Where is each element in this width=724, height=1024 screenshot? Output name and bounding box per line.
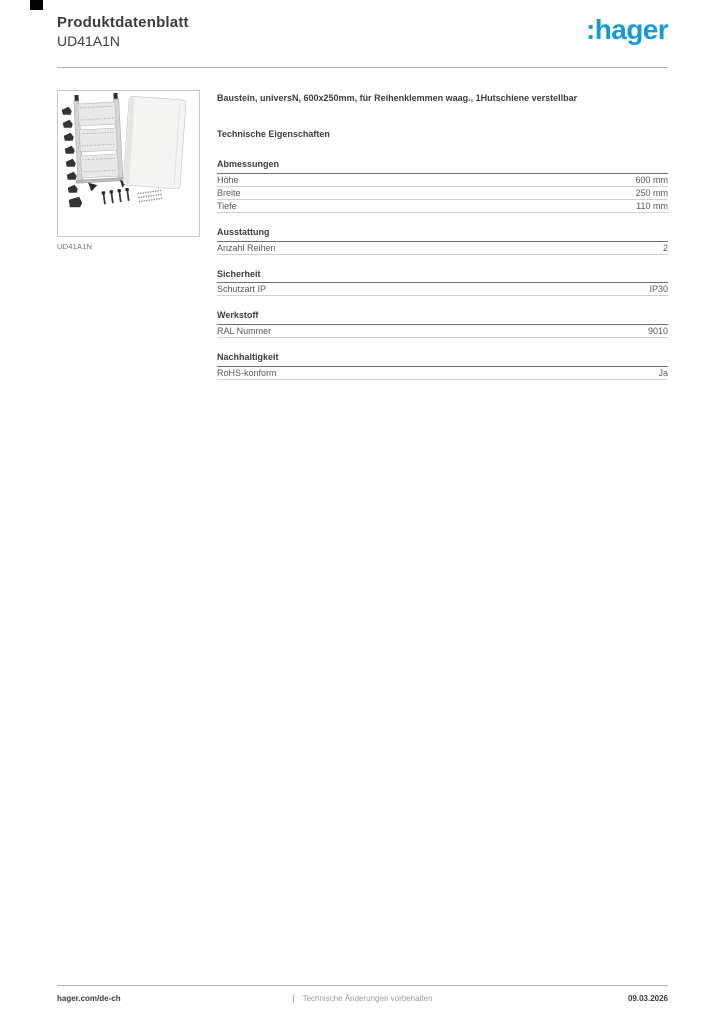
spec-row: RAL Nummer 9010 [217,325,668,338]
product-image-caption: UD41A1N [57,242,200,251]
spec-section-title: Nachhaltigkeit [217,352,668,367]
parts-strip [138,190,163,201]
spec-section-abmessungen: Abmessungen Höhe 600 mm Breite 250 mm Ti… [217,159,668,213]
header-titles: Produktdatenblatt UD41A1N [57,14,668,49]
footer-website-link[interactable]: hager.com/de-ch [57,994,293,1003]
product-image [57,90,200,237]
product-image-column: UD41A1N [57,90,200,380]
spec-section-nachhaltigkeit: Nachhaltigkeit RoHS-konform Ja [217,352,668,380]
spec-section-title: Werkstoff [217,310,668,325]
spec-value: 110 mm [636,201,668,211]
hager-logo: :hager [586,16,668,44]
spec-row: Schutzart IP IP30 [217,283,668,296]
spec-row: Anzahl Reihen 2 [217,242,668,255]
spec-section-title: Abmessungen [217,159,668,174]
spec-column: Baustein, universN, 600x250mm, für Reihe… [217,90,668,380]
footer-disclaimer-group: Technische Änderungen vorbehalten [293,994,433,1003]
crop-mark [30,0,43,10]
spec-row: Breite 250 mm [217,187,668,200]
spec-section-title: Ausstattung [217,227,668,242]
screws [101,188,130,205]
product-description: Baustein, universN, 600x250mm, für Reihe… [217,93,668,104]
spec-label: Tiefe [217,201,237,211]
header: Produktdatenblatt UD41A1N :hager [57,0,668,68]
footer-date: 09.03.2026 [432,994,668,1003]
tech-properties-title: Technische Eigenschaften [217,129,668,140]
spec-value: Ja [658,368,668,378]
spec-label: Höhe [217,175,239,185]
spec-label: RAL Nummer [217,326,271,336]
spec-value: 250 mm [635,188,668,198]
spec-section-title: Sicherheit [217,269,668,284]
content: UD41A1N Baustein, universN, 600x250mm, f… [57,90,668,380]
spec-label: Anzahl Reihen [217,243,276,253]
product-photo-illustration [58,91,199,236]
spec-row: RoHS-konform Ja [217,367,668,380]
footer: hager.com/de-ch Technische Änderungen vo… [57,985,668,1003]
spec-row: Tiefe 110 mm [217,200,668,213]
page-title: Produktdatenblatt [57,14,668,31]
chassis-frame [71,93,126,192]
footer-separator [293,994,294,1003]
spec-value: IP30 [649,284,668,294]
datasheet-page: Produktdatenblatt UD41A1N :hager [0,0,724,1024]
spec-label: Breite [217,188,241,198]
spec-value: 9010 [648,326,668,336]
spec-value: 600 mm [635,175,668,185]
spec-value: 2 [663,243,668,253]
spec-row: Höhe 600 mm [217,174,668,187]
spec-section-sicherheit: Sicherheit Schutzart IP IP30 [217,269,668,297]
spec-section-werkstoff: Werkstoff RAL Nummer 9010 [217,310,668,338]
spec-label: Schutzart IP [217,284,266,294]
footer-disclaimer: Technische Änderungen vorbehalten [303,994,433,1003]
spec-section-ausstattung: Ausstattung Anzahl Reihen 2 [217,227,668,255]
product-reference: UD41A1N [57,33,668,49]
cover-panel [123,96,186,189]
spec-label: RoHS-konform [217,368,277,378]
